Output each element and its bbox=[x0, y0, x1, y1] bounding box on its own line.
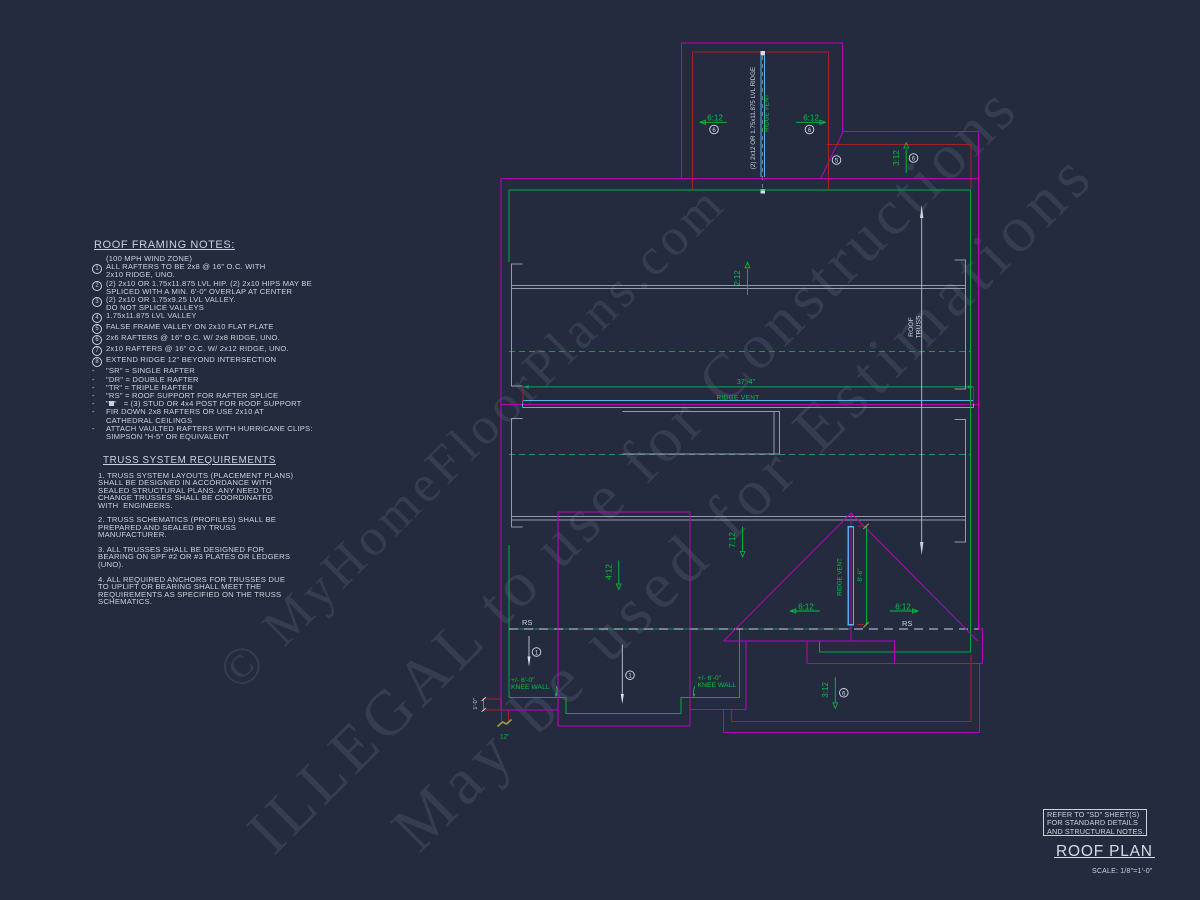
svg-text:6:12: 6:12 bbox=[803, 114, 819, 123]
svg-text:1'-0": 1'-0" bbox=[473, 698, 479, 710]
svg-text:KNEE WALL: KNEE WALL bbox=[698, 682, 737, 689]
svg-text:TRUSS: TRUSS bbox=[916, 315, 923, 339]
svg-text:RS: RS bbox=[522, 618, 532, 627]
svg-text:3:12: 3:12 bbox=[821, 682, 830, 698]
svg-text:4:12: 4:12 bbox=[605, 564, 614, 580]
svg-text:7:12: 7:12 bbox=[728, 532, 737, 548]
svg-text:37'-4": 37'-4" bbox=[737, 377, 756, 386]
svg-text:3:12: 3:12 bbox=[892, 150, 901, 166]
svg-text:6:12: 6:12 bbox=[707, 114, 723, 123]
svg-text:RIDGE VENT: RIDGE VENT bbox=[764, 94, 771, 132]
svg-text:RIDGE VENT: RIDGE VENT bbox=[716, 395, 759, 402]
svg-text:(2) 2x12 OR 1.75x11.875 LVL RI: (2) 2x12 OR 1.75x11.875 LVL RIDGE bbox=[750, 67, 757, 169]
svg-text:6:12: 6:12 bbox=[895, 602, 911, 611]
svg-text:6:12: 6:12 bbox=[798, 602, 814, 611]
svg-text:RIDGE VENT: RIDGE VENT bbox=[837, 558, 844, 596]
svg-text:RS: RS bbox=[902, 619, 912, 628]
svg-text:2:12: 2:12 bbox=[733, 270, 742, 286]
svg-text:+/- 6'-0": +/- 6'-0" bbox=[698, 675, 722, 682]
svg-text:ROOF: ROOF bbox=[908, 317, 915, 337]
svg-text:KNEE WALL: KNEE WALL bbox=[511, 684, 550, 691]
svg-text:8'-6": 8'-6" bbox=[857, 568, 864, 582]
svg-text:+/- 6'-0": +/- 6'-0" bbox=[511, 677, 535, 684]
svg-text:12": 12" bbox=[500, 734, 509, 741]
